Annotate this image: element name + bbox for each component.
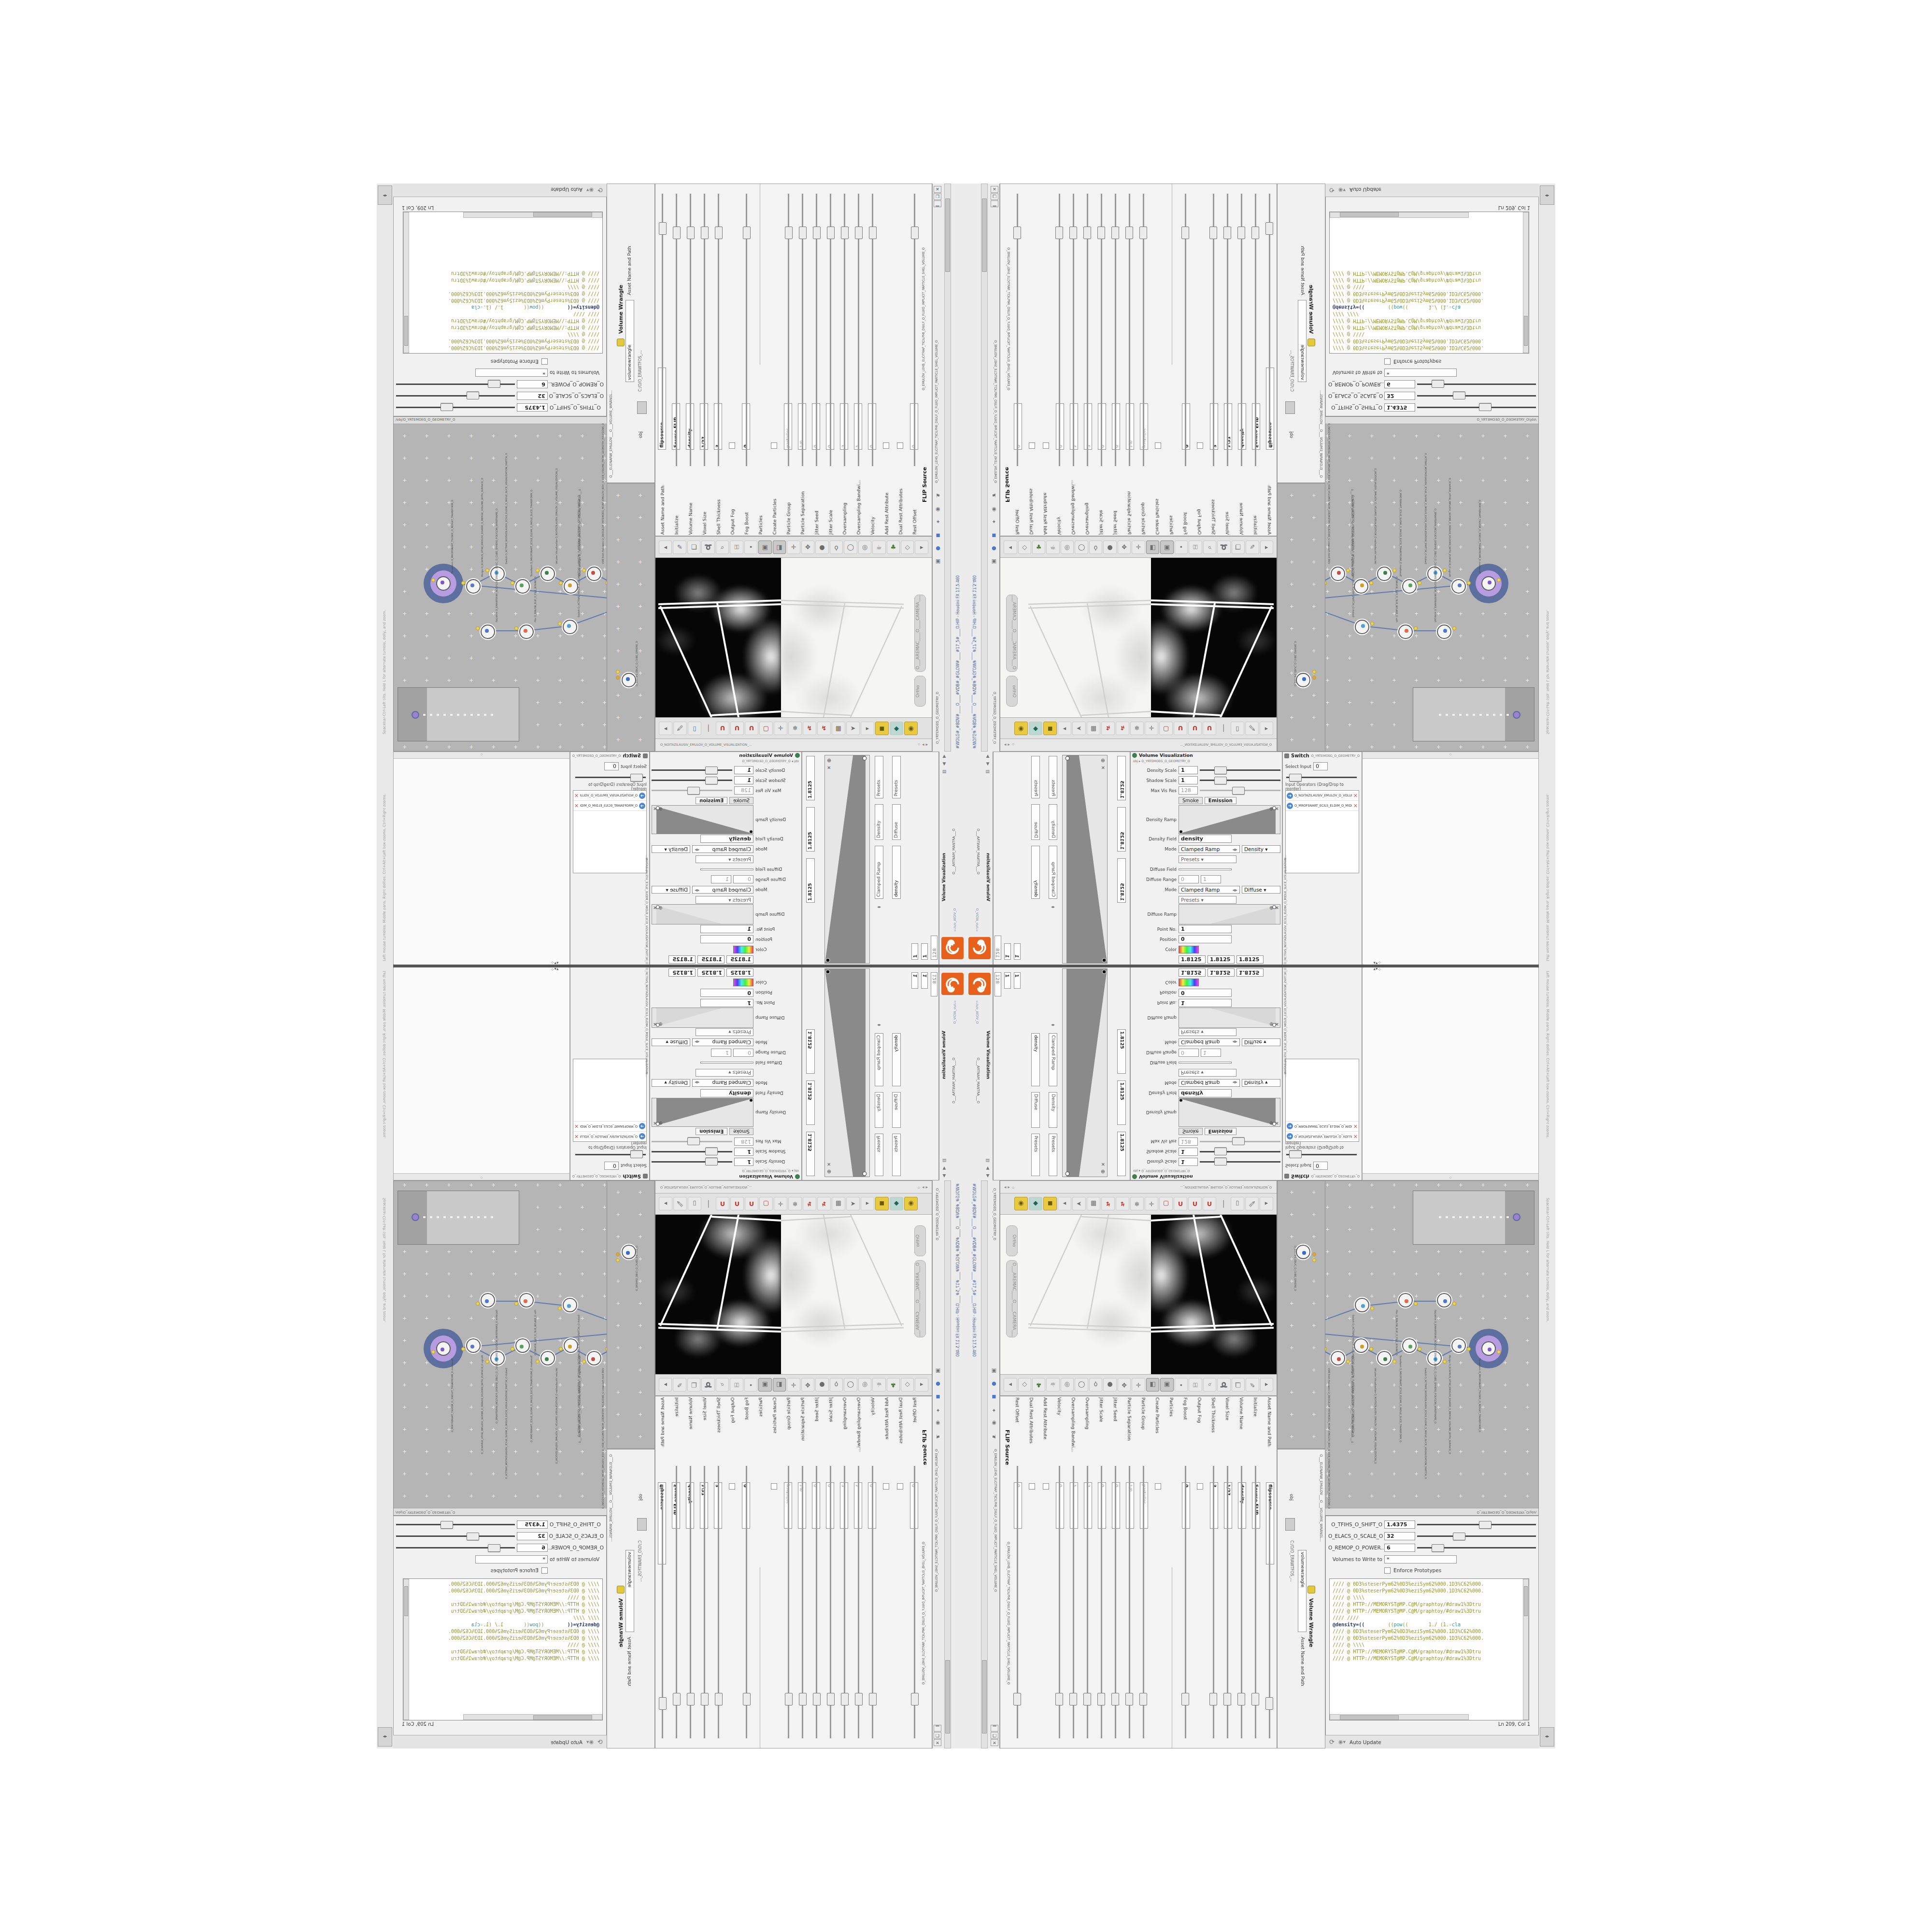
magnet-icon[interactable]: U: [730, 1197, 744, 1211]
brush-icon[interactable]: 🖉: [1245, 1197, 1259, 1211]
ramp-del-button[interactable]: ✕: [1101, 1162, 1105, 1167]
window-maximize-button[interactable]: ❐: [934, 193, 941, 200]
dot-icon[interactable]: •: [1175, 540, 1188, 554]
flip-tab[interactable]: O_EMULOV_LEHS_ELCITRAP_TICILPMI_DIULF_O_…: [1007, 187, 1010, 390]
box-icon[interactable]: ▣: [992, 1368, 996, 1374]
flip-vslider[interactable]: [746, 194, 747, 466]
flip-vslider[interactable]: [676, 1466, 677, 1738]
network-editor-extension[interactable]: ++++++++++++++++++++++++ O_EREHPS_EBUC_O…: [1277, 483, 1325, 752]
network-node-transform[interactable]: [436, 1341, 451, 1356]
network-editor-extension[interactable]: ++++++++++++++++++++++++ O_EREHPS_EBUC_O…: [607, 483, 655, 752]
doc-icon[interactable]: ▯: [688, 722, 701, 735]
layers-icon[interactable]: ❏: [687, 540, 700, 554]
ball-icon[interactable]: ●: [1103, 1378, 1116, 1392]
ramp-value-field[interactable]: 1.8125: [806, 1080, 815, 1125]
flip-vslider[interactable]: [704, 1466, 705, 1738]
dot-icon[interactable]: •: [744, 1378, 757, 1392]
clamped-ramp-dropdown[interactable]: Clamped Ramp: [875, 1033, 883, 1086]
network-node-vdb-from-polygons[interactable]: [587, 567, 601, 581]
flip-tab[interactable]: O_EMULOV_LEHS_ELCITRAP_TICILPMI_DIULF_O_…: [1007, 1542, 1010, 1745]
jack-icon[interactable]: ↯: [803, 1197, 816, 1211]
snowflake-icon[interactable]: ❄: [1130, 1197, 1144, 1211]
network-node-polywire[interactable]: [481, 1293, 495, 1307]
checkbox[interactable]: [771, 1483, 777, 1490]
software-path[interactable]: C:/O/O_ERAWTFOS_...: [638, 189, 642, 392]
enforce-prototypes-checkbox[interactable]: [541, 1567, 548, 1574]
view-a-icon[interactable]: ▣: [758, 540, 771, 554]
arrow-right-icon[interactable]: ▸: [861, 722, 874, 735]
arrow-left-icon[interactable]: ◂: [659, 540, 672, 554]
enforce-prototypes-checkbox[interactable]: [1384, 1567, 1391, 1574]
maxvisres-value[interactable]: 128: [994, 936, 1001, 960]
node-cubesphere[interactable]: [1296, 673, 1310, 687]
flip-vslider[interactable]: [1143, 194, 1144, 466]
geometry-tab-seam[interactable]: O_YRTEMOEG_O_GEOMETRY_O: [936, 1188, 939, 1314]
smoke-tab[interactable]: Smoke: [729, 1128, 753, 1135]
select-input-slider[interactable]: [1286, 777, 1357, 778]
code-hscrollbar[interactable]: [463, 1714, 602, 1720]
param-slider[interactable]: [396, 407, 515, 409]
arrow-left-icon[interactable]: ◂: [1260, 1197, 1273, 1211]
network-node-transform[interactable]: [1481, 1341, 1496, 1356]
maxvisres-value[interactable]: 128: [931, 936, 938, 960]
lasso-icon[interactable]: ➰: [1217, 540, 1230, 554]
auto-update-label[interactable]: Auto Update: [551, 187, 582, 193]
code-hscrollbar[interactable]: [1330, 212, 1469, 218]
magnet-icon[interactable]: U: [1188, 1197, 1202, 1211]
input-operators-list[interactable]: ➜O_NOITAZILAUSIV_EMULOV_O_VOLUME_VISUALI…: [573, 790, 647, 873]
volvis-path[interactable]: obj ▸ O_YRTEMOEG_O_GEOMETRY_O: [742, 759, 799, 763]
jack-icon[interactable]: ↯: [1101, 722, 1115, 735]
network-node-transform[interactable]: [1402, 1338, 1417, 1353]
lamp-icon[interactable]: ◉: [1014, 722, 1028, 735]
diffuse-mode-dropdown[interactable]: Diffuse: [1031, 1092, 1040, 1128]
obj-label[interactable]: obj: [1289, 1494, 1294, 1513]
jack-icon[interactable]: ↯: [1116, 1197, 1129, 1211]
ramp-value-field[interactable]: 1.8125: [806, 858, 815, 903]
diffuse-ramp[interactable]: ⊕ ✕: [652, 904, 753, 924]
remove-item-icon[interactable]: ✕: [574, 1123, 579, 1130]
pen-icon[interactable]: ✎: [1246, 1378, 1259, 1392]
emission-tab[interactable]: Emission: [696, 1128, 727, 1135]
clamped-ramp-dropdown[interactable]: Clamped Ramp: [1049, 1033, 1057, 1086]
refresh-icon[interactable]: ⟳: [1329, 1738, 1335, 1746]
remove-item-icon[interactable]: ✕: [574, 1134, 579, 1140]
magnet-icon[interactable]: U: [1174, 1197, 1187, 1211]
network-editor-extension[interactable]: ++++++++++++++++++++++++ O_EREHPS_EBUC_O…: [1277, 1180, 1325, 1449]
seam-grip[interactable]: ⁘▴▾: [1373, 960, 1381, 965]
emission-tab[interactable]: Emission: [1205, 1128, 1236, 1135]
mantra-tab[interactable]: O___ARTNAM_MANTRA___O: [952, 1058, 956, 1169]
obj-film-icon[interactable]: [1285, 401, 1295, 414]
handles-icon[interactable]: ✥: [801, 540, 814, 554]
network-node-file[interactable]: [1398, 625, 1413, 639]
chip-icon[interactable]: ▦: [1087, 1197, 1100, 1211]
doc-icon[interactable]: ▯: [1231, 722, 1244, 735]
arrow-left-icon[interactable]: ◂: [659, 722, 672, 735]
density-ramp-editor[interactable]: ⊕ ✕: [1062, 755, 1108, 964]
pane-down-icon[interactable]: ▼: [986, 1166, 990, 1171]
software-path[interactable]: C:/O/O_ERAWTFOS_...: [1290, 189, 1294, 392]
magnet-icon[interactable]: U: [716, 1197, 729, 1211]
sep-icon[interactable]: │: [1217, 1198, 1230, 1210]
flip-vslider[interactable]: [802, 1466, 803, 1738]
flip-vslider[interactable]: [1269, 194, 1270, 430]
param-field[interactable]: 1.4375: [517, 1520, 548, 1529]
mantra-tab[interactable]: O___ARTNAM_MANTRA___O: [952, 763, 956, 874]
box-icon[interactable]: ▣: [936, 1368, 940, 1374]
input-operator-row[interactable]: ➜O_NOITAZILAUSIV_EMULOV_O_VOLUME_VISUALI…: [1286, 1131, 1359, 1141]
pane-splitter-box[interactable]: ◂▸: [378, 1727, 392, 1747]
arrow-right-icon[interactable]: ▸: [1058, 722, 1071, 735]
density-ramp[interactable]: ⊕ ✕: [652, 805, 753, 834]
switch-tab[interactable]: O_HCTIWS_NOITAZILAUSIV_ECILS_ELDIM_O_MID…: [645, 877, 649, 964]
ortho-pill[interactable]: Ortho: [1006, 1225, 1018, 1256]
network-node-switch[interactable]: [1355, 620, 1369, 634]
scale-value[interactable]: 1: [1004, 943, 1011, 960]
network-node-file[interactable]: [519, 625, 534, 639]
emission-tab[interactable]: Emission: [1205, 797, 1236, 804]
key-icon[interactable]: ⚿: [1189, 540, 1202, 554]
jack-icon[interactable]: ↯: [803, 722, 816, 735]
scene-viewport[interactable]: ◂✎❏➰⌕⚿•▣◨✛✥●ϙ◯◎☕♣◇▸: [1000, 1180, 1277, 1396]
chip-icon[interactable]: ▦: [832, 722, 845, 735]
asset-name-field[interactable]: volumewrangle: [1298, 300, 1307, 382]
flip-vslider[interactable]: [1185, 194, 1186, 466]
flip-vslider[interactable]: [1087, 1466, 1088, 1738]
input-operator-row[interactable]: ➜O_NOITAZILAUSIV_EMULOV_O_VOLUME_VISUALI…: [1286, 791, 1359, 801]
sphere-icon[interactable]: ●: [936, 1381, 940, 1387]
param-slider[interactable]: [396, 1524, 515, 1525]
window-minimize-button[interactable]: ▁: [991, 200, 998, 207]
bulb-icon[interactable]: ϙ: [1089, 1378, 1102, 1392]
checkbox[interactable]: [1029, 442, 1035, 449]
vex-code-editor[interactable]: //// @ 0D3%steserPym62%0D3%eziSym62%000.…: [1329, 212, 1529, 354]
view-b-icon[interactable]: ◨: [1146, 1378, 1159, 1392]
ramp-value-field[interactable]: 1.8125: [1117, 1132, 1126, 1176]
presets-dropdown[interactable]: Presets: [875, 756, 883, 798]
viewport-render[interactable]: O___AREMAC____O____CAMERA___O Ortho: [1000, 558, 1277, 717]
view-a-icon[interactable]: ▣: [758, 1378, 771, 1392]
seam-scrollbar[interactable]: [981, 1180, 988, 1748]
network-node-vdb-from-polygons[interactable]: [587, 1351, 601, 1365]
flip-vslider[interactable]: [1213, 194, 1214, 466]
tree-icon[interactable]: ♣: [887, 540, 900, 554]
ortho-pill[interactable]: Ortho: [914, 1225, 926, 1256]
network-node-vdb-from-polygons[interactable]: [1331, 1351, 1345, 1365]
sphere-icon[interactable]: ◯: [1075, 1378, 1088, 1392]
snowflake-icon[interactable]: ❄: [788, 722, 802, 735]
checkbox[interactable]: [1043, 442, 1049, 449]
flip-vslider[interactable]: [1087, 194, 1088, 466]
scale-value[interactable]: 1: [921, 972, 928, 989]
auto-update-label[interactable]: Auto Update: [1350, 1739, 1381, 1745]
pane-up-icon[interactable]: ▲: [943, 753, 946, 758]
volumes-to-write-field[interactable]: *: [1384, 1555, 1457, 1563]
density-ramp-editor[interactable]: ⊕ ✕: [824, 968, 870, 1177]
remove-item-icon[interactable]: ✕: [1353, 1134, 1358, 1140]
flip-vslider[interactable]: [1269, 1502, 1270, 1738]
scene-viewport[interactable]: ◂✎❏➰⌕⚿•▣◨✛✥●ϙ◯◎☕♣◇▸: [655, 536, 932, 752]
flip-vslider[interactable]: [1255, 194, 1256, 466]
flip-vslider[interactable]: [704, 194, 705, 466]
camera-selector-pill[interactable]: O___AREMAC____O____CAMERA___O: [914, 1260, 926, 1337]
obj-label[interactable]: obj: [1289, 419, 1294, 438]
density-ramp[interactable]: ⊕ ✕: [1179, 805, 1280, 834]
network-node-file[interactable]: [519, 1293, 534, 1307]
software-path[interactable]: C:/O/O_ERAWTFOS_...: [1290, 1540, 1294, 1743]
switch-tab[interactable]: O_HCTIWS_NOITAZILAUSIV_ECILS_ELDIM_O_MID…: [1283, 968, 1287, 1055]
star-icon[interactable]: ✦: [992, 1407, 996, 1413]
cube-icon[interactable]: ◼: [992, 532, 996, 538]
magnet-icon[interactable]: U: [1203, 722, 1216, 735]
chip-icon[interactable]: ▦: [1087, 722, 1100, 735]
input-operators-list[interactable]: ➜O_NOITAZILAUSIV_EMULOV_O_VOLUME_VISUALI…: [1285, 790, 1359, 873]
ramp-value-field[interactable]: 1.8125: [1117, 1080, 1126, 1125]
flip-vslider[interactable]: [1017, 1466, 1018, 1738]
ramp-value-field[interactable]: 1.8125: [806, 1132, 815, 1176]
magnet-icon[interactable]: U: [716, 722, 729, 735]
seam-grip[interactable]: ⁘▴▾: [551, 960, 559, 965]
network-node-transform[interactable]: [515, 1338, 530, 1353]
pen-icon[interactable]: ✎: [1246, 540, 1259, 554]
wrangle-tab[interactable]: O___ELGNARW_EMULOV___O___VOLUME_WRANGL..…: [609, 188, 613, 478]
switch-tab[interactable]: O_HCTIWS_NOITAZILAUSIV_ECILS_ELDIM_O_MID…: [1283, 877, 1287, 964]
code-vscrollbar[interactable]: [403, 212, 409, 353]
network-node-volume-wrangle[interactable]: [1354, 1338, 1368, 1353]
magnet-icon[interactable]: U: [1188, 722, 1202, 735]
flip-tab-seam[interactable]: O_EMULOV_LEHS_ELCITRAP_TICILPMI_DIULF_O_…: [994, 213, 997, 483]
pen-icon[interactable]: ✎: [673, 540, 686, 554]
node-cubesphere[interactable]: [622, 1245, 636, 1259]
flip-vslider[interactable]: [1129, 1466, 1130, 1738]
clamped-ramp-dropdown[interactable]: Clamped Ramp: [875, 846, 883, 899]
network-node-polywire[interactable]: [1437, 1293, 1451, 1307]
flip-vslider[interactable]: [1241, 194, 1242, 466]
presets-dropdown[interactable]: Presets: [1049, 756, 1057, 798]
goto-node-icon[interactable]: ➜: [639, 1123, 645, 1130]
enforce-prototypes-checkbox[interactable]: [1384, 359, 1391, 365]
window-close-button[interactable]: ✕: [991, 1739, 998, 1746]
code-vscrollbar[interactable]: [403, 1579, 409, 1720]
volvis-path[interactable]: obj ▸ O_YRTEMOEG_O_GEOMETRY_O: [1133, 1169, 1190, 1173]
jack-icon[interactable]: ↯: [817, 1197, 831, 1211]
checkbox[interactable]: [771, 442, 777, 449]
tree-icon[interactable]: ♣: [1032, 540, 1045, 554]
flip-vslider[interactable]: [1101, 194, 1102, 466]
houdini-spiral-icon[interactable]: [941, 937, 964, 959]
network-node-transform[interactable]: [1481, 576, 1496, 591]
asset-name-field[interactable]: volumewrangle: [625, 1550, 634, 1632]
viewport-render[interactable]: O___AREMAC____O____CAMERA___O Ortho: [655, 558, 932, 717]
window-minimize-button[interactable]: ▁: [934, 200, 941, 207]
window-maximize-button[interactable]: ❐: [991, 193, 998, 200]
density-mode-dropdown[interactable]: Density: [1049, 1092, 1057, 1128]
brush-icon[interactable]: 🖉: [673, 722, 687, 735]
magnet-icon[interactable]: U: [1203, 1197, 1216, 1211]
dot-icon[interactable]: •: [1175, 1378, 1188, 1392]
goto-node-icon[interactable]: ➜: [639, 803, 645, 809]
network-node-merge[interactable]: [1451, 1338, 1466, 1353]
seam-scrollbar[interactable]: [944, 184, 951, 752]
key-icon[interactable]: ⚿: [730, 540, 743, 554]
view-a-icon[interactable]: ▣: [1160, 540, 1173, 554]
input-operator-row[interactable]: ➜O_MROFSNART_ECILS_ELDIM_O_MIDLE_SLICE_T…: [1286, 1121, 1359, 1131]
network-node-volume-wrangle[interactable]: [564, 1338, 578, 1353]
network-editor-extension[interactable]: ++++++++++++++++++++++++ O_EREHPS_EBUC_O…: [607, 1180, 655, 1449]
smoke-tab[interactable]: Smoke: [729, 797, 753, 804]
vex-code-editor[interactable]: //// @ 0D3%steserPym62%0D3%eziSym62%000.…: [1329, 1578, 1529, 1720]
gem-icon[interactable]: ◆: [1029, 722, 1042, 735]
goto-node-icon[interactable]: ➜: [639, 793, 645, 799]
input-operators-list[interactable]: ➜O_NOITAZILAUSIV_EMULOV_O_VOLUME_VISUALI…: [573, 1059, 647, 1142]
sphere-icon[interactable]: ●: [992, 1381, 996, 1387]
geometry-tab-seam[interactable]: O_YRTEMOEG_O_GEOMETRY_O: [936, 618, 939, 744]
goto-node-icon[interactable]: ➜: [1287, 1123, 1293, 1130]
sphere-icon[interactable]: ◯: [844, 1378, 857, 1392]
handles-icon[interactable]: ✥: [801, 1378, 814, 1392]
switch-path[interactable]: O_YRTEMOEG_O_GEOMETRY_O: [572, 754, 621, 758]
network-node-polywire[interactable]: [481, 625, 495, 639]
obj-film-icon[interactable]: [637, 1518, 647, 1531]
flip-vslider[interactable]: [914, 1466, 915, 1738]
doc-icon[interactable]: ▯: [688, 1197, 701, 1211]
flip-vslider[interactable]: [718, 1466, 719, 1738]
pivot-icon[interactable]: ✛: [1132, 1378, 1145, 1392]
ramp-value-field[interactable]: 1.8125: [806, 1029, 815, 1074]
emission-tab[interactable]: Emission: [696, 797, 727, 804]
pane-up-icon[interactable]: ▲: [986, 753, 990, 758]
film-icon[interactable]: ▤: [942, 1158, 947, 1163]
obj-label[interactable]: obj: [638, 419, 643, 438]
ball-icon[interactable]: ●: [1103, 540, 1116, 554]
network-minimap[interactable]: [398, 687, 519, 741]
wand-icon[interactable]: ⌕: [1203, 540, 1216, 554]
pivot-icon[interactable]: ✛: [1132, 540, 1145, 554]
diffuse-ramp[interactable]: ⊕ ✕: [652, 1008, 753, 1028]
density-mode-dropdown[interactable]: Density: [875, 1092, 883, 1128]
arrow-left-icon[interactable]: ◂: [659, 1378, 672, 1392]
obj-film-icon[interactable]: [637, 401, 647, 414]
window-close-button[interactable]: ✕: [934, 186, 941, 193]
brush-icon[interactable]: 🖉: [1245, 722, 1259, 735]
pane-down-icon[interactable]: ▼: [943, 761, 946, 766]
gem-icon[interactable]: ◆: [890, 1197, 903, 1211]
handles-icon[interactable]: ✥: [1118, 540, 1131, 554]
layers-icon[interactable]: ❏: [687, 1378, 700, 1392]
network-node-volume-visualization[interactable]: [1377, 1351, 1392, 1365]
pivot-icon[interactable]: ✛: [787, 1378, 800, 1392]
bulb-icon[interactable]: ϙ: [1089, 540, 1102, 554]
mantra-tab[interactable]: O___ARTNAM_MANTRA___O: [976, 1058, 980, 1169]
network-node-volume-wrangle[interactable]: [564, 579, 578, 594]
network-node-volume-wrangle[interactable]: [1354, 579, 1368, 594]
volvis-path[interactable]: obj ▸ O_YRTEMOEG_O_GEOMETRY_O: [1133, 759, 1190, 763]
network-node-switch[interactable]: [563, 620, 577, 634]
param-field[interactable]: 1.4375: [1384, 1520, 1415, 1529]
viewport-render[interactable]: O___AREMAC____O____CAMERA___O Ortho: [655, 1215, 932, 1374]
arrow-right-icon[interactable]: ▸: [915, 1378, 928, 1392]
film-icon[interactable]: ▤: [986, 1158, 990, 1163]
flip-vslider[interactable]: [830, 194, 831, 466]
mug-icon[interactable]: ☕: [872, 1378, 885, 1392]
maxvisres-value[interactable]: 128: [994, 972, 1001, 996]
diffuse-mode-dropdown[interactable]: Diffuse: [892, 804, 901, 840]
lasso-icon[interactable]: ➰: [701, 1378, 714, 1392]
network-node-merge[interactable]: [466, 579, 481, 594]
axis-icon[interactable]: ✛: [774, 722, 787, 735]
network-node-polywire[interactable]: [1437, 625, 1451, 639]
smoke-tab[interactable]: Smoke: [1179, 797, 1203, 804]
key-icon[interactable]: ⚿: [730, 1378, 743, 1392]
color-swatch[interactable]: [733, 946, 753, 953]
flip-vslider[interactable]: [872, 1466, 873, 1738]
update-mode-icon[interactable]: ◉▾: [1338, 187, 1346, 193]
arrow-right-icon[interactable]: ▸: [915, 540, 928, 554]
param-slider[interactable]: [1417, 407, 1536, 409]
network-node-volume-visualization[interactable]: [540, 567, 555, 581]
pane-down-icon[interactable]: ▼: [943, 1166, 946, 1171]
network-node-merge[interactable]: [1451, 579, 1466, 594]
flip-vslider[interactable]: [844, 1466, 845, 1738]
remove-item-icon[interactable]: ✕: [574, 793, 579, 799]
flip-vslider[interactable]: [1227, 194, 1228, 466]
film-icon[interactable]: ▤: [942, 769, 947, 774]
pane-splitter-box[interactable]: ◂▸: [378, 185, 392, 205]
select-input-slider[interactable]: [575, 777, 646, 778]
enforce-prototypes-checkbox[interactable]: [541, 359, 548, 365]
arrow-left-icon[interactable]: ◂: [659, 1197, 672, 1211]
geometry-tab-seam[interactable]: O_YRTEMOEG_O_GEOMETRY_O: [993, 1188, 996, 1314]
auto-update-label[interactable]: Auto Update: [1350, 187, 1381, 193]
input-operator-row[interactable]: ➜O_MROFSNART_ECILS_ELDIM_O_MIDLE_SLICE_T…: [573, 801, 646, 811]
jack-icon[interactable]: ↯: [817, 722, 831, 735]
magnet-box-icon[interactable]: ▢: [759, 722, 773, 735]
gem-icon[interactable]: ◆: [1029, 1197, 1042, 1211]
flip-tab-seam[interactable]: O_EMULOV_LEHS_ELCITRAP_TICILPMI_DIULF_O_…: [935, 1449, 938, 1719]
diamond-icon[interactable]: ◇: [1018, 1378, 1031, 1392]
pane-up-icon[interactable]: ▲: [943, 1174, 946, 1179]
flip-vslider[interactable]: [1115, 1466, 1116, 1738]
arrow-right-icon[interactable]: ▸: [1004, 1378, 1017, 1392]
cube-icon[interactable]: ◼: [875, 722, 889, 735]
snowflake-icon[interactable]: ❄: [1130, 722, 1144, 735]
network-node-volume-visualization[interactable]: [1377, 567, 1392, 581]
smoke-tab[interactable]: Smoke: [1179, 1128, 1203, 1135]
arrow-left-icon[interactable]: ◂: [1260, 1378, 1273, 1392]
ramp-value-field[interactable]: 1.8125: [1117, 756, 1126, 800]
cursor-icon[interactable]: ➤: [1072, 722, 1086, 735]
ball-icon[interactable]: ●: [815, 540, 828, 554]
flip-vslider[interactable]: [746, 1466, 747, 1738]
pane-splitter-box[interactable]: ◂▸: [1540, 1727, 1554, 1747]
checkbox[interactable]: [1029, 1483, 1035, 1490]
checkbox[interactable]: [883, 442, 889, 449]
houdini-spiral-icon[interactable]: [968, 937, 991, 959]
key-icon[interactable]: ⚿: [1189, 1378, 1202, 1392]
vis-tab-text[interactable]: O_NOITAZILAUSIV_EMULOV_O_VOLUME_VISUALIZ…: [1180, 1185, 1272, 1189]
cursor-icon[interactable]: ➤: [846, 722, 860, 735]
axis-icon[interactable]: ✛: [1145, 1197, 1158, 1211]
density-ramp[interactable]: ⊕ ✕: [1179, 1098, 1280, 1127]
flip-vslider[interactable]: [690, 1466, 691, 1738]
window-minimize-button[interactable]: ▁: [934, 1725, 941, 1732]
magnet-icon[interactable]: U: [745, 1197, 758, 1211]
magnet-box-icon[interactable]: ▢: [759, 1197, 773, 1211]
window-maximize-button[interactable]: ❐: [934, 1732, 941, 1739]
flip-vslider[interactable]: [816, 194, 817, 466]
wand-icon[interactable]: ⌕: [1203, 1378, 1216, 1392]
